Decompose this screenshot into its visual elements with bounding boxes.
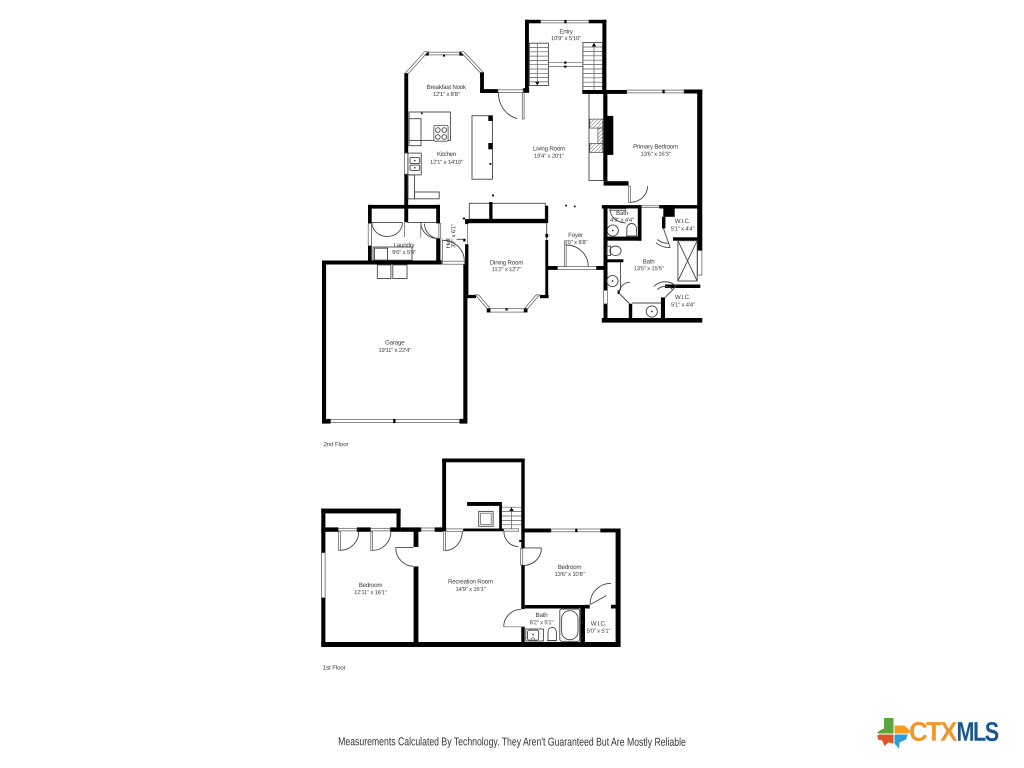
svg-text:Dining Room: Dining Room	[490, 259, 523, 266]
svg-text:13'5" x 15'5": 13'5" x 15'5"	[634, 265, 664, 272]
svg-text:5'0" x 5'1": 5'0" x 5'1"	[587, 628, 611, 635]
svg-text:12'1" x 8'8": 12'1" x 8'8"	[433, 91, 460, 98]
svg-text:Entry: Entry	[559, 28, 573, 35]
svg-text:Primary Bedroom: Primary Bedroom	[633, 143, 678, 150]
svg-text:Living Room: Living Room	[533, 145, 565, 152]
svg-text:Bath: Bath	[616, 210, 629, 217]
svg-text:Bedroom: Bedroom	[558, 564, 582, 571]
svg-text:14'9" x 16'1": 14'9" x 16'1"	[456, 586, 486, 593]
svg-text:10'9" x 5'10": 10'9" x 5'10"	[551, 35, 581, 42]
svg-text:W.I.C.: W.I.C.	[675, 218, 691, 225]
svg-text:11'2" x 12'7": 11'2" x 12'7"	[492, 266, 522, 273]
svg-text:4'9" x 4'4": 4'9" x 4'4"	[610, 217, 634, 224]
svg-text:W.I.C.: W.I.C.	[591, 620, 607, 627]
svg-text:Laundry: Laundry	[394, 242, 416, 249]
svg-text:Breakfast Nook: Breakfast Nook	[427, 84, 467, 91]
svg-text:MLS: MLS	[956, 717, 998, 747]
svg-text:5'1" x 4'4": 5'1" x 4'4"	[671, 301, 695, 308]
svg-text:19'4" x 20'1": 19'4" x 20'1"	[534, 153, 564, 160]
svg-text:1st Floor: 1st Floor	[323, 664, 346, 671]
svg-text:13'6" x 16'3": 13'6" x 16'3"	[641, 151, 671, 158]
svg-text:Bedroom: Bedroom	[359, 582, 383, 589]
svg-text:Garage: Garage	[385, 339, 405, 346]
svg-text:19'11" x 22'4": 19'11" x 22'4"	[378, 347, 411, 354]
svg-text:12'1" x 14'10": 12'1" x 14'10"	[430, 159, 463, 166]
svg-text:Foyer: Foyer	[568, 232, 583, 239]
svg-text:5'1" x 4'4": 5'1" x 4'4"	[671, 225, 695, 232]
svg-text:Bath: Bath	[643, 258, 656, 265]
svg-text:Kitchen: Kitchen	[437, 151, 457, 158]
svg-text:2nd Floor: 2nd Floor	[324, 441, 349, 448]
svg-text:Bath: Bath	[536, 612, 549, 619]
svg-text:CTX: CTX	[909, 717, 957, 747]
svg-text:13'6" x 10'8": 13'6" x 10'8"	[555, 571, 585, 578]
svg-text:Recreation Room: Recreation Room	[448, 578, 493, 585]
svg-text:12'11" x 16'1": 12'11" x 16'1"	[354, 589, 387, 596]
svg-text:W.I.C.: W.I.C.	[675, 294, 691, 301]
svg-text:8'2" x 5'1": 8'2" x 5'1"	[530, 619, 554, 626]
svg-text:9'6" x 5'9": 9'6" x 5'9"	[392, 249, 416, 256]
svg-text:8'0" x 8'8": 8'0" x 8'8"	[564, 239, 588, 246]
svg-text:Measurements Calculated By Tec: Measurements Calculated By Technology. T…	[338, 736, 686, 749]
